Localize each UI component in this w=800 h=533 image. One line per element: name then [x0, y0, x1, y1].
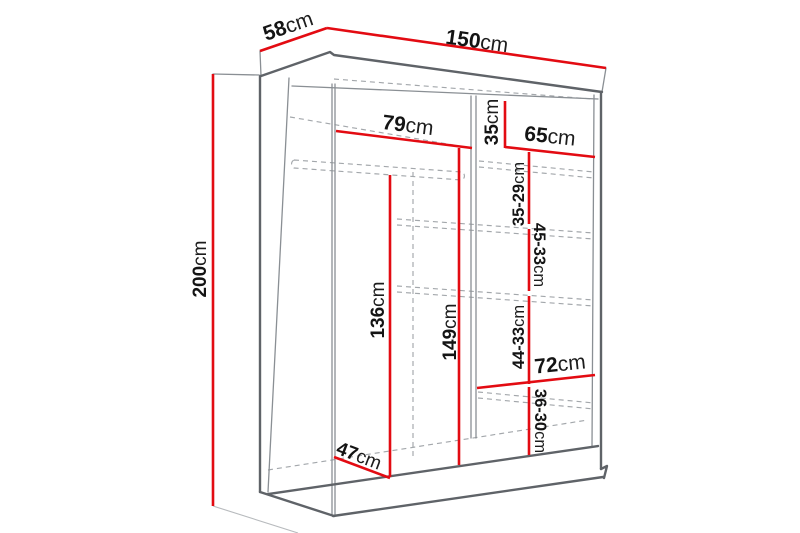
shelf-2-front — [397, 219, 594, 233]
label-79: 79cm — [381, 110, 435, 139]
shelf-3-back — [397, 292, 594, 306]
shelf-2-back — [397, 225, 594, 239]
label-65: 65cm — [523, 122, 576, 150]
label-44-33: 44-33cm — [510, 305, 528, 369]
height-extension-tick — [213, 74, 259, 75]
label-47: 47cm — [334, 438, 385, 474]
hanging-rail — [292, 160, 465, 180]
label-35-29: 35-29cm — [510, 162, 528, 226]
label-height: 200cm — [190, 240, 211, 297]
left-panel-inner-edge — [268, 78, 289, 492]
label-72: 72cm — [533, 350, 586, 378]
label-36-30: 36-30cm — [531, 389, 549, 453]
shelf-1-back — [479, 167, 594, 178]
wardrobe-dimension-diagram: 58cm 150cm 200cm 79cm 35cm 65cm 35-29cm … — [0, 0, 800, 533]
bottom-board-front-edge — [268, 446, 598, 494]
floor-line — [213, 506, 298, 533]
label-45-33: 45-33cm — [530, 223, 548, 287]
right-panel-inner-edge — [592, 95, 594, 447]
shelf-1-front — [479, 161, 594, 172]
label-149: 149cm — [440, 303, 461, 360]
dim-line-65 — [505, 147, 595, 157]
label-35: 35cm — [482, 99, 503, 145]
plinth-bottom-edge — [333, 477, 603, 516]
label-136: 136cm — [368, 281, 389, 338]
diagram-canvas: 58cm 150cm 200cm 79cm 35cm 65cm 35-29cm … — [0, 0, 800, 533]
shelf-3-front — [397, 286, 594, 300]
left-panel-bottom-edge — [260, 492, 334, 516]
